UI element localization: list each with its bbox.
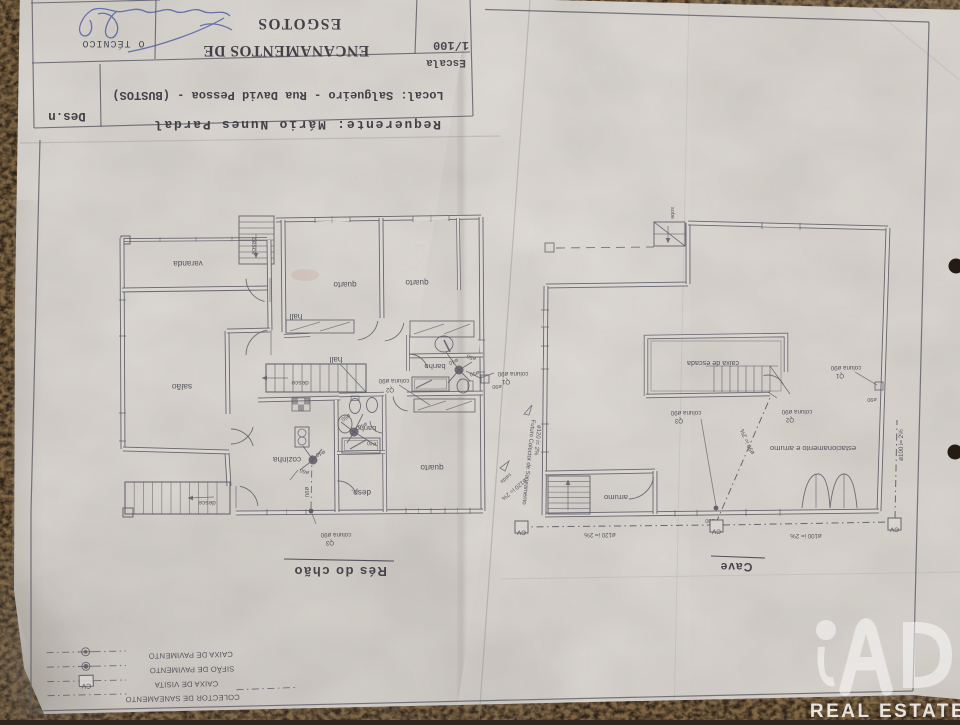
svg-text:CV: CV — [889, 526, 899, 533]
svg-text:ø100 i= 2%: ø100 i= 2% — [898, 429, 905, 461]
svg-text:Q3: Q3 — [674, 417, 683, 424]
svg-text:ø90: ø90 — [867, 396, 876, 402]
svg-text:coluna ø90: coluna ø90 — [670, 409, 701, 416]
svg-text:Q1: Q1 — [835, 372, 844, 379]
svg-text:varanda: varanda — [173, 259, 203, 268]
svg-text:CAIXA DE VISITA: CAIXA DE VISITA — [154, 679, 219, 689]
svg-text:ø90: ø90 — [492, 383, 501, 389]
svg-text:coluna ø90: coluna ø90 — [781, 408, 812, 415]
svg-text:ESGOTOS: ESGOTOS — [257, 15, 341, 32]
svg-text:Des.n: Des.n — [48, 109, 86, 123]
svg-text:ø100 i= 2%: ø100 i= 2% — [790, 532, 822, 539]
svg-text:coluna ø90: coluna ø90 — [497, 370, 528, 377]
svg-text:quarto: quarto — [405, 278, 429, 287]
svg-text:CAIXA DE PAVIMENTO: CAIXA DE PAVIMENTO — [149, 650, 233, 661]
svg-text:caixa de escada: caixa de escada — [687, 359, 739, 368]
svg-text:Local: Salgueiro - Rua David P: Local: Salgueiro - Rua David Pessoa - (B… — [112, 88, 443, 102]
svg-text:ø120 i= 2%: ø120 i= 2% — [584, 531, 616, 538]
svg-text:desce: desce — [250, 237, 257, 255]
svg-text:cozinha: cozinha — [272, 455, 301, 464]
svg-text:banho: banho — [424, 362, 445, 371]
svg-text:ENCANAMENTOS DE: ENCANAMENTOS DE — [203, 42, 369, 59]
svg-text:coluna ø90: coluna ø90 — [320, 531, 351, 538]
svg-text:1/100: 1/100 — [433, 38, 469, 52]
svg-text:coluna ø90: coluna ø90 — [830, 364, 861, 371]
svg-text:O TÉCNICO: O TÉCNICO — [81, 37, 144, 51]
svg-text:desce: desce — [291, 379, 309, 386]
svg-text:desce: desce — [198, 499, 216, 506]
svg-text:REAL ESTATE: REAL ESTATE — [810, 701, 960, 720]
svg-text:Cave: Cave — [720, 560, 753, 574]
svg-text:coluna ø90: coluna ø90 — [378, 377, 409, 384]
svg-text:Rés do chão: Rés do chão — [293, 564, 387, 579]
svg-text:hall: hall — [290, 312, 303, 321]
svg-text:CV: CV — [711, 528, 721, 535]
svg-text:estacionamento e arrumo: estacionamento e arrumo — [770, 444, 856, 453]
svg-text:Requerente: Mário Nunes Parda: Requerente: Mário Nunes Pardal — [153, 117, 441, 132]
svg-text:Escala: Escala — [426, 56, 466, 68]
svg-text:quarto: quarto — [333, 280, 357, 289]
svg-text:ø90: ø90 — [303, 487, 309, 498]
svg-text:CV: CV — [516, 529, 526, 536]
svg-text:CV: CV — [81, 682, 91, 689]
svg-text:SIFÃO DE PAVIMENTO: SIFÃO DE PAVIMENTO — [150, 664, 235, 675]
svg-text:Q2: Q2 — [785, 416, 794, 423]
svg-text:salão: salão — [172, 382, 193, 392]
svg-text:arrumo: arrumo — [604, 493, 628, 502]
svg-text:sobe: sobe — [669, 207, 675, 219]
svg-text:quarto: quarto — [420, 463, 444, 472]
svg-text:hall: hall — [329, 355, 342, 364]
svg-text:Q2: Q2 — [385, 386, 394, 393]
svg-text:Q3: Q3 — [325, 539, 334, 546]
